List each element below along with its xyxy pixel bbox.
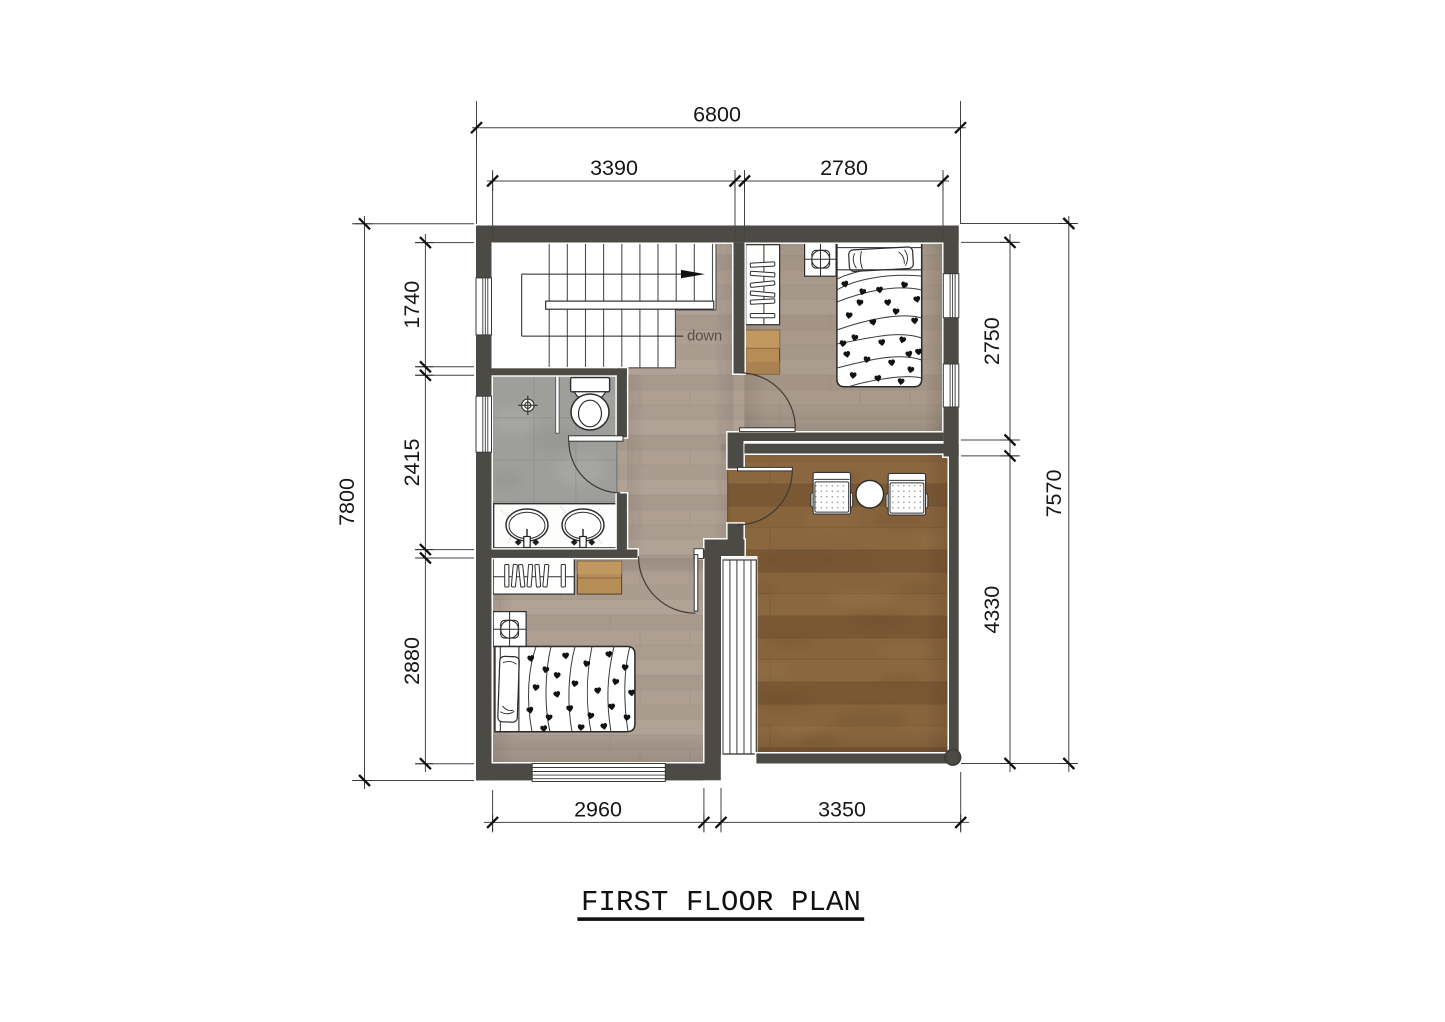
svg-text:4330: 4330	[980, 586, 1004, 634]
svg-text:FIRST FLOOR PLAN: FIRST FLOOR PLAN	[581, 886, 861, 919]
svg-text:1740: 1740	[400, 281, 424, 329]
svg-text:3350: 3350	[818, 798, 866, 822]
svg-text:2415: 2415	[400, 439, 424, 487]
svg-text:3390: 3390	[590, 156, 638, 180]
svg-text:2960: 2960	[574, 798, 622, 822]
svg-text:6800: 6800	[693, 103, 741, 127]
svg-text:7800: 7800	[335, 478, 359, 526]
svg-text:2750: 2750	[980, 317, 1004, 365]
svg-text:down: down	[687, 328, 722, 345]
svg-text:7570: 7570	[1042, 470, 1066, 518]
svg-text:2880: 2880	[400, 637, 424, 685]
svg-text:2780: 2780	[820, 156, 868, 180]
